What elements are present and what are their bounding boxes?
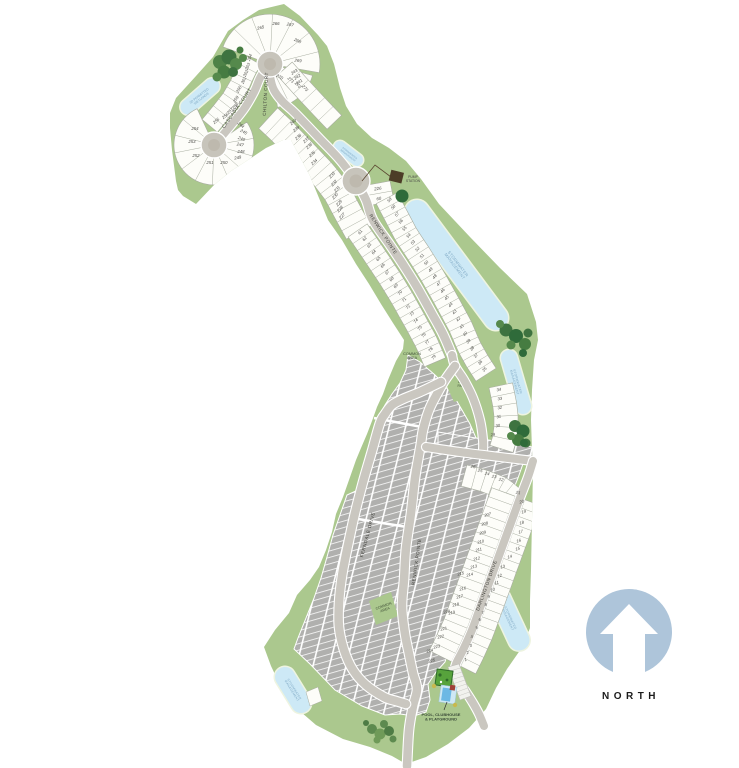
- svg-text:269: 269: [293, 58, 302, 64]
- svg-text:31: 31: [496, 414, 501, 420]
- svg-text:253: 253: [187, 139, 196, 144]
- svg-text:251: 251: [205, 160, 214, 165]
- svg-text:NORTH: NORTH: [602, 691, 660, 702]
- svg-text:250: 250: [219, 160, 228, 165]
- svg-text:252: 252: [191, 153, 200, 158]
- svg-text:254: 254: [190, 126, 199, 131]
- svg-text:POOL, CLUBHOUSE& PLAYGROUND: POOL, CLUBHOUSE& PLAYGROUND: [422, 712, 461, 722]
- svg-text:248: 248: [236, 149, 245, 154]
- svg-text:21: 21: [515, 490, 521, 496]
- svg-text:266: 266: [271, 21, 280, 26]
